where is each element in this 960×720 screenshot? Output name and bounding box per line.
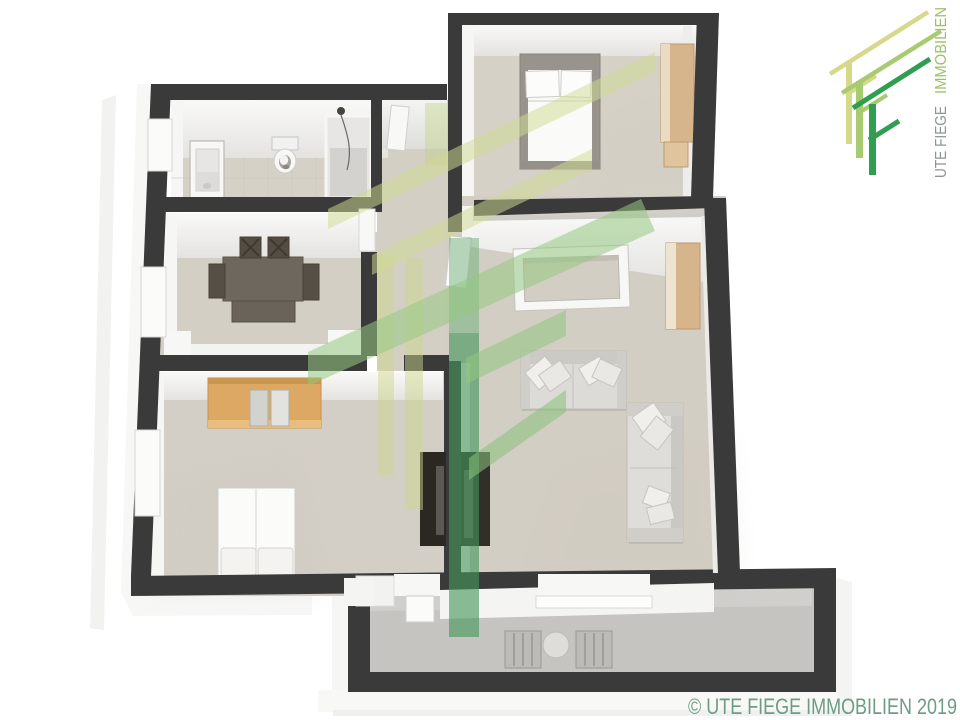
- svg-text:© UTE FIEGE IMMOBILIEN 2019: © UTE FIEGE IMMOBILIEN 2019: [688, 694, 957, 719]
- svg-text:UTE FIEGE: UTE FIEGE: [933, 106, 950, 178]
- svg-text:IMMOBILIEN: IMMOBILIEN: [933, 7, 950, 94]
